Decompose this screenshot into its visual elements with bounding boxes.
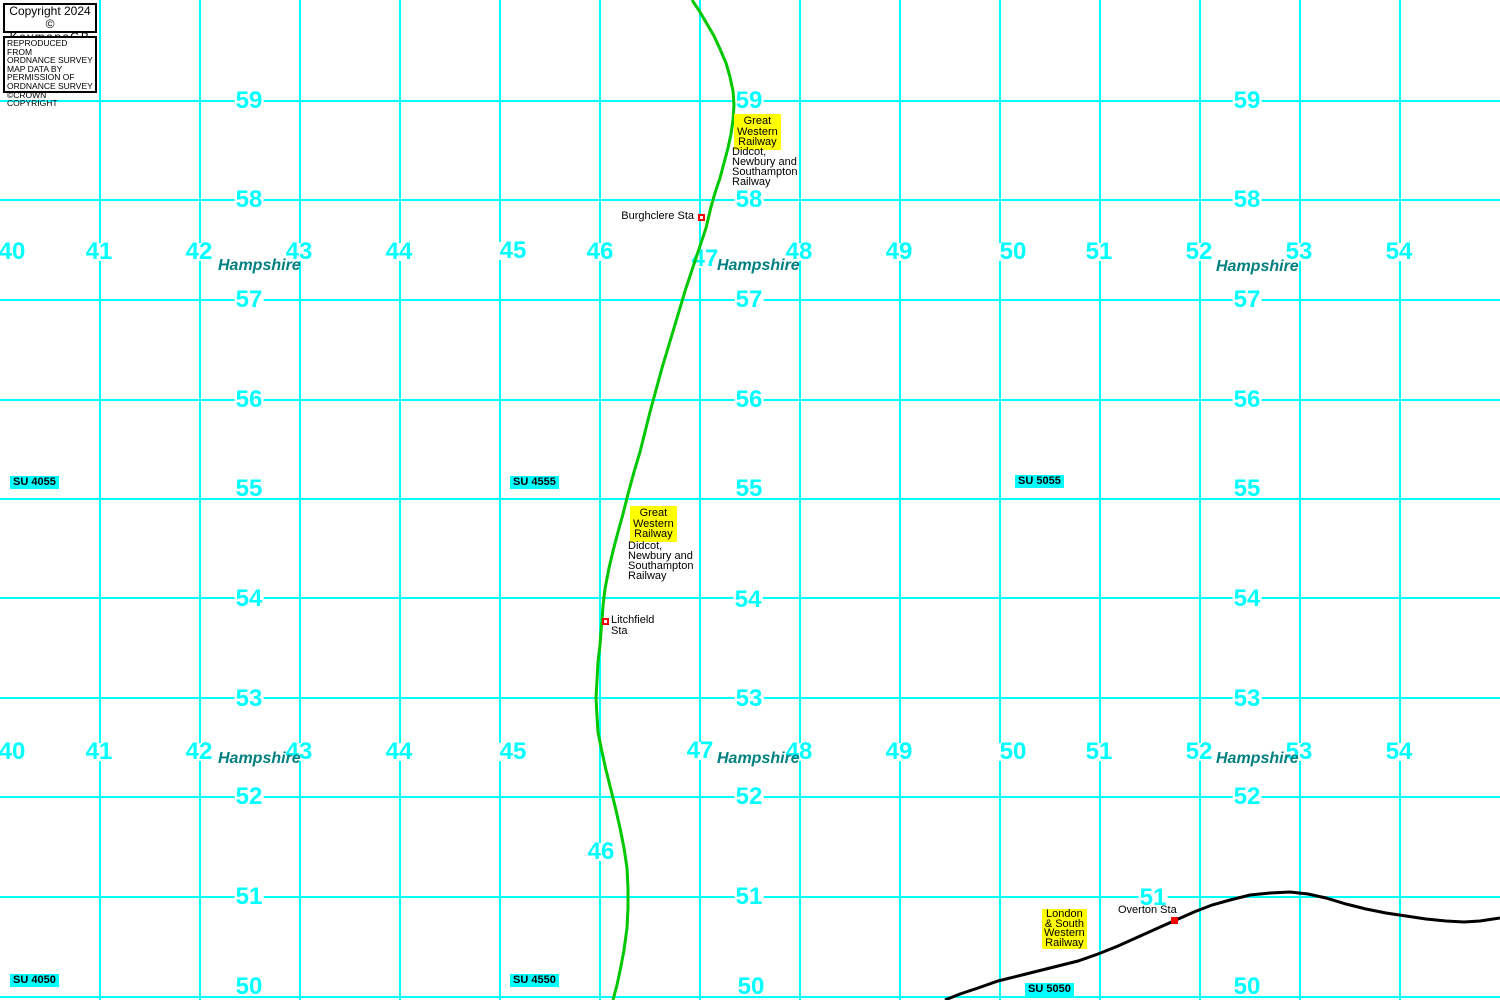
station-marker xyxy=(602,618,609,625)
county-label: Hampshire xyxy=(1216,260,1299,274)
grid-square-reference: SU 4550 xyxy=(510,974,559,987)
notice-line: REPRODUCED FROM xyxy=(7,39,93,56)
railway-description-line: Railway xyxy=(732,177,797,187)
railway-description-line: Railway xyxy=(628,571,693,581)
grid-square-reference: SU 5050 xyxy=(1025,983,1074,996)
county-label: Hampshire xyxy=(717,259,800,273)
copyright-year: Copyright 2024 © xyxy=(5,5,95,31)
county-label: Hampshire xyxy=(1216,752,1299,766)
grid-square-reference: SU 4050 xyxy=(10,974,59,987)
station-name-line: Overton Sta xyxy=(1118,905,1177,916)
notice-line: ©CROWN COPYRIGHT xyxy=(7,91,93,108)
county-label: Hampshire xyxy=(717,752,800,766)
grid-square-reference: SU 5055 xyxy=(1015,475,1064,488)
station-marker xyxy=(698,214,705,221)
railway-name-line: Railway xyxy=(633,529,674,540)
railway-name-line: Great xyxy=(737,116,778,127)
map-canvas: Copyright 2024 © KeymapsGB REPRODUCED FR… xyxy=(0,0,1500,1000)
railway-name-line: Railway xyxy=(1044,939,1085,949)
railway-name-label: London& SouthWesternRailway xyxy=(1042,909,1087,949)
railway-name-label: GreatWesternRailway xyxy=(734,114,781,150)
station-name-line: Sta xyxy=(611,626,654,637)
station-name-line: Burghclere Sta xyxy=(621,211,694,222)
railway-description-label: Didcot,Newbury andSouthamptonRailway xyxy=(628,541,693,581)
county-label: Hampshire xyxy=(218,752,301,766)
railway-name-line: Great xyxy=(633,508,674,519)
station-name-label: Burghclere Sta xyxy=(621,211,694,222)
copyright-box: Copyright 2024 © KeymapsGB xyxy=(3,3,97,33)
railway-description-label: Didcot,Newbury andSouthamptonRailway xyxy=(732,147,797,187)
railway-name-label: GreatWesternRailway xyxy=(630,506,677,542)
railway-line xyxy=(596,0,734,1000)
station-name-label: Overton Sta xyxy=(1118,905,1177,916)
station-name-label: LitchfieldSta xyxy=(611,615,654,637)
grid-square-reference: SU 4055 xyxy=(10,476,59,489)
grid-square-reference: SU 4555 xyxy=(510,476,559,489)
ordnance-survey-notice-box: REPRODUCED FROM ORDNANCE SURVEY MAP DATA… xyxy=(3,36,97,93)
county-label: Hampshire xyxy=(218,259,301,273)
station-marker xyxy=(1171,917,1178,924)
